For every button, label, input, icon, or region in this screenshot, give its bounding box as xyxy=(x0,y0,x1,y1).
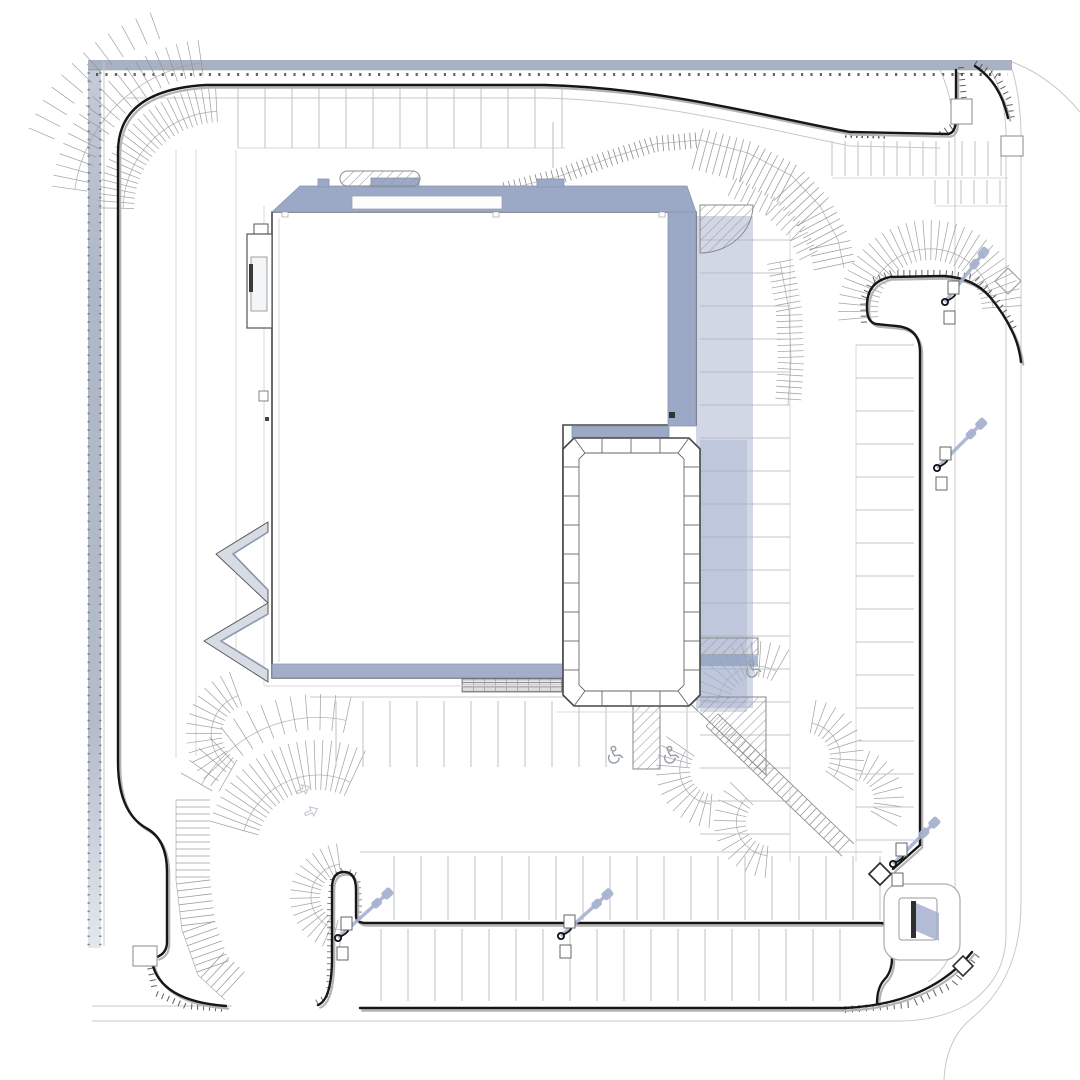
tick xyxy=(940,987,943,993)
fan-tick xyxy=(112,153,144,170)
fan-tick xyxy=(305,695,308,731)
tick xyxy=(811,250,840,256)
fan-tick xyxy=(656,765,690,768)
entry-step xyxy=(254,224,268,234)
fan-tick xyxy=(305,741,311,791)
fan-tick xyxy=(661,745,692,759)
tick xyxy=(944,128,947,133)
parking-row-top-row-west xyxy=(238,84,562,148)
tick xyxy=(758,166,772,193)
walkway-step xyxy=(805,808,817,820)
fan-tick xyxy=(343,697,350,732)
fan-tick xyxy=(320,849,333,876)
tick xyxy=(741,139,744,151)
fan-tick xyxy=(724,791,750,809)
walkway-step xyxy=(800,804,812,816)
tick xyxy=(734,138,737,150)
tick xyxy=(791,165,797,176)
parking-row-top-row-east-2 xyxy=(935,180,1000,204)
tick xyxy=(147,968,153,969)
curb-ramp-diamond-icon xyxy=(995,268,1021,294)
tick xyxy=(316,1000,318,1004)
tick xyxy=(952,981,958,985)
tick xyxy=(753,191,762,209)
tick xyxy=(774,180,796,200)
fan-tick xyxy=(242,769,276,806)
tick xyxy=(178,894,212,898)
tick xyxy=(777,175,791,202)
tick xyxy=(771,172,785,199)
parking-row-bottom-row-lower xyxy=(381,929,840,1001)
tick xyxy=(181,922,215,926)
slope-fan xyxy=(181,694,351,791)
tick xyxy=(839,241,851,244)
walkway-step xyxy=(772,777,784,789)
walkway-edge xyxy=(706,726,842,856)
tick xyxy=(959,73,965,74)
tick xyxy=(190,941,222,952)
tick xyxy=(752,162,766,189)
tick-band-left-berm-band xyxy=(176,800,244,1000)
tick xyxy=(815,192,824,200)
tick xyxy=(206,957,229,982)
fan-tick xyxy=(860,751,870,779)
tick xyxy=(812,257,841,263)
fan-tick xyxy=(923,220,926,260)
fan-tick xyxy=(296,873,323,886)
fan-tick xyxy=(187,723,223,729)
tick xyxy=(772,155,778,166)
fan-tick xyxy=(936,221,940,261)
fan-tick xyxy=(658,776,691,785)
tick xyxy=(167,996,169,1002)
fan-tick xyxy=(838,303,878,307)
light-pole-icon xyxy=(934,417,988,490)
fan-tick xyxy=(728,838,752,859)
tick xyxy=(734,181,743,199)
south-strip-hatch xyxy=(700,638,758,655)
monument-sign-icon xyxy=(884,884,960,960)
tick xyxy=(826,212,837,218)
west-door-bar xyxy=(249,264,253,292)
pole-base xyxy=(948,281,959,294)
tick xyxy=(785,161,791,172)
tick xyxy=(706,144,714,173)
tick xyxy=(221,972,244,997)
driveway-apron-north xyxy=(951,99,972,124)
fan-tick xyxy=(210,821,258,835)
tick xyxy=(712,145,720,174)
tick xyxy=(195,954,227,965)
site-plan-drawing xyxy=(0,0,1080,1080)
tick xyxy=(149,974,155,975)
tick xyxy=(766,152,772,163)
pole-base xyxy=(940,447,951,460)
fan-tick xyxy=(193,704,225,720)
fan-tick xyxy=(814,703,826,735)
tick xyxy=(746,159,760,186)
tick xyxy=(793,238,811,247)
tick xyxy=(747,141,750,153)
sign-panel xyxy=(911,901,916,938)
pole-base xyxy=(892,873,903,886)
fan-tick xyxy=(275,700,285,735)
traffic-arrow-icon xyxy=(295,782,311,797)
tick xyxy=(833,225,844,231)
fan-tick xyxy=(288,744,301,792)
fan-tick xyxy=(122,26,135,51)
fan-tick xyxy=(290,696,296,731)
slope-fan xyxy=(656,737,712,828)
tick xyxy=(778,158,784,169)
fan-tick xyxy=(187,42,194,77)
fan-tick xyxy=(220,676,237,708)
tick xyxy=(806,230,833,244)
tick xyxy=(1007,105,1013,106)
fan-tick xyxy=(326,741,332,791)
tick xyxy=(960,85,966,86)
tick xyxy=(961,97,967,98)
driveway-apron-southwest xyxy=(133,946,157,966)
tick xyxy=(1000,86,1005,89)
fan-tick xyxy=(209,737,234,763)
tick xyxy=(957,975,963,979)
tick xyxy=(840,247,852,250)
tick xyxy=(836,231,847,237)
tick xyxy=(1006,97,1011,100)
tick xyxy=(178,1001,180,1007)
fan-tick xyxy=(330,742,340,791)
tick xyxy=(801,177,810,185)
accessible-aisle-hatch xyxy=(633,703,660,769)
fan-tick xyxy=(290,898,320,899)
fan-tick xyxy=(201,88,207,123)
fan-tick xyxy=(818,707,835,736)
fan-tick xyxy=(870,769,894,787)
tick xyxy=(739,153,747,182)
tick xyxy=(727,136,730,148)
slope-fan xyxy=(98,86,217,208)
slope-fan xyxy=(860,751,904,826)
secondary-roof-connector xyxy=(572,426,669,438)
right-road-lane-1 xyxy=(928,70,955,982)
walkway-step xyxy=(833,835,845,847)
tick xyxy=(747,187,756,205)
fan-tick xyxy=(219,760,237,791)
fan-tick xyxy=(291,901,320,907)
fan-tick xyxy=(336,844,340,874)
tick xyxy=(764,169,778,196)
pole-base xyxy=(936,477,947,490)
fan-tick xyxy=(293,905,321,915)
tick xyxy=(177,887,211,891)
pole-base xyxy=(564,915,575,928)
wheelchair-icon xyxy=(661,745,679,765)
fan-tick xyxy=(216,86,218,122)
tick xyxy=(814,264,843,270)
fan-tick xyxy=(873,807,901,817)
tick xyxy=(183,921,215,932)
fan-tick xyxy=(320,694,321,730)
light-pole-icon xyxy=(890,816,942,886)
tick xyxy=(150,980,156,981)
tick xyxy=(949,124,952,129)
pole-base xyxy=(560,945,571,958)
slope-fan xyxy=(186,672,242,791)
tick xyxy=(201,953,224,978)
tick xyxy=(830,219,841,225)
fan-tick xyxy=(106,166,140,179)
parking-row-bottom-row-upper xyxy=(394,856,880,920)
fan-arc xyxy=(812,723,840,776)
fan-tick xyxy=(898,226,912,263)
curb-island-east xyxy=(867,276,1021,845)
fan-tick xyxy=(261,705,274,739)
tick xyxy=(960,91,966,92)
roof-dot-3 xyxy=(659,212,665,217)
fan-tick xyxy=(290,890,320,894)
tick xyxy=(707,130,710,142)
fan-tick xyxy=(321,740,323,790)
fan-tick xyxy=(838,317,878,320)
walkway-step xyxy=(824,826,836,838)
tick xyxy=(921,996,924,1002)
tick xyxy=(842,254,854,257)
fan-arc xyxy=(201,717,346,784)
fan-tick xyxy=(931,220,932,260)
tick xyxy=(970,273,971,279)
tick xyxy=(720,134,723,146)
tick xyxy=(181,915,215,919)
fan-tick xyxy=(29,128,55,139)
fan-tick xyxy=(297,909,323,924)
top-right-exit-curve xyxy=(1012,62,1080,112)
tick xyxy=(176,880,210,884)
tick xyxy=(823,206,834,212)
fan-tick xyxy=(822,713,844,739)
tick xyxy=(1003,92,1008,95)
tick xyxy=(861,296,866,299)
fan-tick xyxy=(830,750,864,754)
curb-entrance-southwest xyxy=(152,962,226,1006)
fan-tick xyxy=(906,223,916,262)
fan-tick xyxy=(872,778,899,791)
tick xyxy=(959,79,965,80)
roof-dot-1 xyxy=(282,212,288,217)
tick xyxy=(726,149,734,178)
fan-tick xyxy=(109,159,142,174)
tick xyxy=(810,187,819,195)
tick xyxy=(741,184,750,202)
main-roof-band-south xyxy=(272,664,563,678)
fan-tick xyxy=(332,695,336,731)
fan-tick xyxy=(208,87,212,123)
tick xyxy=(790,232,808,241)
roof-unit-dark xyxy=(669,412,675,418)
roof-notch-3 xyxy=(537,179,564,187)
fan-tick xyxy=(844,278,881,293)
fan-tick xyxy=(247,711,263,743)
fan-tick xyxy=(189,714,223,725)
traffic-arrow-icon xyxy=(303,804,319,819)
left-road-band xyxy=(88,62,101,948)
walkway-step xyxy=(795,799,807,811)
light-pole-icon xyxy=(942,246,991,324)
fan-tick xyxy=(656,772,690,775)
fan-tick xyxy=(981,297,1020,303)
tick xyxy=(997,81,1002,84)
tick xyxy=(188,934,220,945)
fan-tick xyxy=(709,794,712,828)
pole-base xyxy=(337,947,348,960)
right-road-lane-2 xyxy=(900,69,1006,1021)
tick xyxy=(180,908,214,912)
fan-tick xyxy=(771,650,789,681)
fan-tick xyxy=(249,764,280,803)
walkway-step xyxy=(819,822,831,834)
fan-tick xyxy=(236,776,273,810)
tick xyxy=(700,128,703,140)
main-roof-band-east xyxy=(668,212,696,426)
walkway-step xyxy=(781,786,793,798)
tick xyxy=(759,194,768,212)
fan-tick xyxy=(810,700,816,733)
site-plan-canvas xyxy=(0,0,1080,1080)
fan-tick xyxy=(830,759,864,761)
fan-tick xyxy=(699,793,708,826)
fan-tick xyxy=(52,87,75,103)
fan-tick xyxy=(335,744,349,792)
tick xyxy=(714,132,717,144)
tick xyxy=(779,185,801,205)
buildings xyxy=(204,171,700,712)
fan-tick xyxy=(136,19,148,45)
top-road-band xyxy=(88,60,1012,69)
fan-arc xyxy=(123,111,217,208)
fan-tick xyxy=(871,811,897,826)
west-dot xyxy=(265,417,269,421)
tick xyxy=(783,190,805,210)
fan-tick xyxy=(221,727,243,755)
roof-notch-1 xyxy=(318,179,329,187)
fan-tick xyxy=(174,96,188,129)
tick xyxy=(699,142,707,171)
walkway-step xyxy=(777,781,789,793)
fan-arc xyxy=(244,775,351,831)
roof-canopy-inset xyxy=(352,196,502,209)
fan-tick xyxy=(35,114,60,127)
fan-tick xyxy=(730,782,753,805)
tick xyxy=(156,991,158,997)
tick xyxy=(958,67,964,68)
roof-dot-2 xyxy=(493,212,499,217)
tick xyxy=(933,990,936,996)
walkway-step xyxy=(814,817,826,829)
fan-tick xyxy=(722,834,749,850)
tick xyxy=(994,74,997,79)
sidewalk-edge-top xyxy=(126,98,940,148)
tick xyxy=(151,986,157,987)
tick xyxy=(185,928,217,939)
walkway-step xyxy=(828,831,840,843)
fan-tick xyxy=(181,773,212,791)
fan-arc xyxy=(211,696,238,770)
tick xyxy=(179,901,213,905)
walkway-edge xyxy=(718,714,854,844)
west-vestibule-inner xyxy=(251,257,267,311)
fan-tick xyxy=(826,771,854,791)
fan-tick xyxy=(187,738,223,743)
fan-tick xyxy=(715,810,746,817)
tick xyxy=(803,224,830,238)
fan-tick xyxy=(950,227,965,264)
fan-tick xyxy=(297,742,307,791)
fan-tick xyxy=(56,164,91,174)
curb-left-jog xyxy=(118,762,167,957)
fan-tick xyxy=(314,740,316,790)
wheelchair-icon xyxy=(605,745,623,765)
tick xyxy=(216,967,239,992)
fan-tick xyxy=(61,75,82,93)
walkway-triangle-hatch xyxy=(683,697,766,775)
tick xyxy=(728,178,737,196)
fan-tick xyxy=(827,730,857,746)
fan-tick xyxy=(765,846,768,878)
fan-tick xyxy=(914,221,921,260)
walkway-step xyxy=(809,813,821,825)
fan-tick xyxy=(189,743,223,753)
tick xyxy=(796,172,805,180)
tick xyxy=(162,994,164,1000)
fan-tick xyxy=(229,672,241,706)
pole-base xyxy=(341,917,352,930)
pole-base xyxy=(896,843,907,856)
curb-ramp-diamond-icon xyxy=(869,863,891,885)
walkway-step xyxy=(786,790,798,802)
roof-island-hatch xyxy=(340,171,420,186)
tick xyxy=(740,156,754,183)
fan-tick xyxy=(717,830,747,841)
fan-tick xyxy=(150,13,160,39)
fan-tick xyxy=(328,845,337,874)
fan-tick xyxy=(874,803,904,807)
west-step-2 xyxy=(259,391,268,401)
slope-fan xyxy=(210,740,365,835)
tick xyxy=(809,243,838,249)
curb-dash-detail xyxy=(845,137,888,138)
tick xyxy=(754,145,760,156)
secondary-building-shadow xyxy=(700,440,747,712)
tick xyxy=(914,999,917,1005)
slope-fan xyxy=(714,782,768,877)
slope-fan xyxy=(838,220,1022,320)
fan-tick xyxy=(52,186,88,191)
fan-tick xyxy=(54,175,89,182)
fan-tick xyxy=(126,67,146,97)
tick xyxy=(733,151,741,180)
tick xyxy=(805,182,814,190)
walkway-step xyxy=(838,840,850,852)
pole-base xyxy=(944,311,955,324)
fan-tick xyxy=(874,797,904,799)
walkway-step xyxy=(767,772,779,784)
fan-tick xyxy=(867,761,887,783)
fan-tick xyxy=(43,100,67,115)
fan-tick xyxy=(715,826,747,831)
fan-tick xyxy=(863,755,879,781)
secondary-parapet-inner xyxy=(579,453,684,691)
tick xyxy=(719,147,727,176)
